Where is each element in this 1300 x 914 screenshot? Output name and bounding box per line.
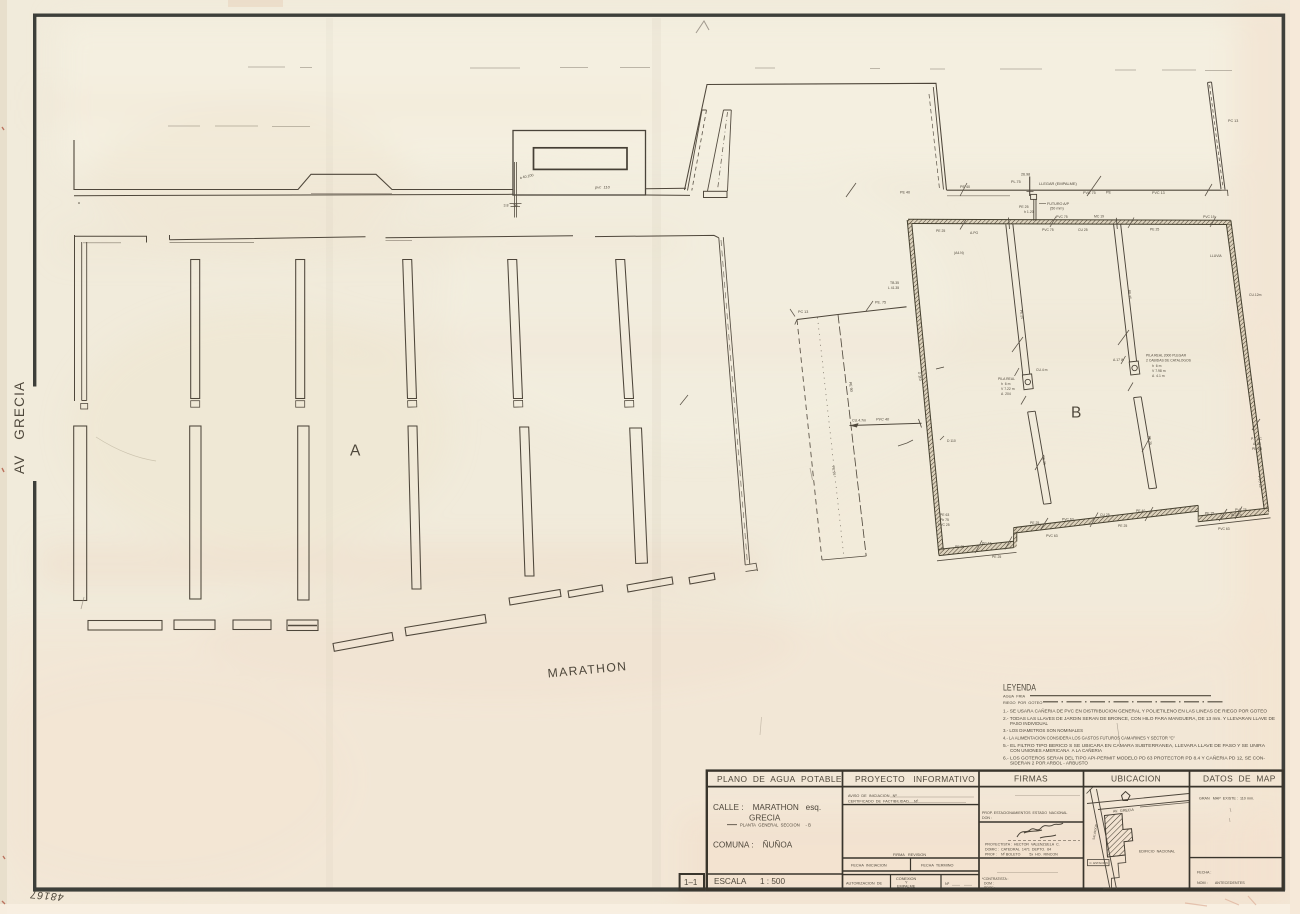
svg-text:A 204: A 204 (1001, 392, 1011, 396)
svg-text:CU 25: CU 25 (1078, 228, 1088, 232)
svg-text:PVC 25: PVC 25 (938, 523, 950, 527)
svg-text:h 6 m: h 6 m (1001, 382, 1011, 386)
svg-text:A.PG: A.PG (970, 231, 978, 235)
svg-text:pvc 110: pvc 110 (594, 185, 611, 190)
svg-text:A: A (350, 443, 361, 460)
svg-text:PROYECTISTA : HECTOR VALENZU: PROYECTISTA : HECTOR VALENZUELA C. (985, 843, 1060, 847)
svg-text:(50 mm): (50 mm) (1050, 207, 1064, 211)
svg-text:PE 25: PE 25 (936, 229, 945, 233)
svg-text:PVC 75: PVC 75 (1056, 215, 1068, 219)
svg-text:PE 25: PE 25 (992, 555, 1001, 559)
svg-text:PVC 13: PVC 13 (1152, 191, 1165, 195)
svg-text:PVC 75: PVC 75 (1042, 228, 1054, 232)
svg-text:SIDERAN 2 POR ARBOL - ARBUSTO: SIDERAN 2 POR ARBOL - ARBUSTO (1010, 761, 1089, 766)
svg-text:EDIFICIO NACIONAL: EDIFICIO NACIONAL (1139, 850, 1175, 854)
svg-text:1–1: 1–1 (684, 878, 698, 887)
svg-text:C. ESTACION: C. ESTACION (1090, 861, 1108, 865)
svg-text:AGUA FRIA: AGUA FRIA (1003, 694, 1025, 699)
svg-text:AUTORIZACION DE: AUTORIZACION DE (846, 882, 882, 886)
svg-text:CU.4 m: CU.4 m (1036, 368, 1048, 372)
svg-text:CU.4.7m: CU.4.7m (852, 419, 866, 423)
svg-text:MC 19: MC 19 (1094, 215, 1104, 219)
svg-text:PLANO DE AGUA POTABLE: PLANO DE AGUA POTABLE (717, 774, 842, 784)
svg-text:PE 63: PE 63 (940, 513, 949, 517)
svg-text:PC 13: PC 13 (1228, 119, 1238, 123)
svg-text:UBICACION: UBICACION (1111, 774, 1161, 784)
svg-text:PROYECTO INFORMATIVO: PROYECTO INFORMATIVO (855, 774, 975, 784)
svg-text:RIEGO POR GOTEO: RIEGO POR GOTEO (1003, 700, 1042, 705)
svg-text:26.98: 26.98 (1021, 173, 1030, 177)
svg-text:EMPALME: EMPALME (897, 885, 916, 889)
svg-text:PILA REAL 2000 PLEGAR: PILA REAL 2000 PLEGAR (1146, 354, 1187, 358)
svg-text:D 110: D 110 (947, 439, 956, 443)
svg-text:PROF : Nº BOLETO 5x: PROF : Nº BOLETO 5x HO. RINCON (985, 853, 1058, 857)
svg-text:FUTURO A/P: FUTURO A/P (1047, 202, 1070, 206)
svg-text:PROF :: PROF : (984, 886, 995, 890)
svg-text:A. 38: A. 38 (1253, 442, 1261, 446)
svg-text:P.T. AC: P.T. AC (1251, 437, 1262, 441)
svg-text:PC 13: PC 13 (982, 542, 992, 546)
svg-text:PASO INDIVIDUAL: PASO INDIVIDUAL (1010, 721, 1049, 726)
svg-text:PVC 75: PVC 75 (1083, 191, 1096, 195)
svg-text:4.- LA ALIMENTACION CONSIDERA: 4.- LA ALIMENTACION CONSIDERA LOS GASTOS… (1003, 736, 1176, 741)
svg-text:FIRMAS: FIRMAS (1014, 774, 1048, 784)
svg-text:1.- SE USARA CAÑERIA DE PVC EN: 1.- SE USARA CAÑERIA DE PVC EN DISTRIBUC… (1003, 709, 1268, 714)
svg-text:PROP. ESTACIONAMIENTOS ESTADO: PROP. ESTACIONAMIENTOS ESTADO NACIONAL (982, 811, 1067, 815)
svg-text:FECHA :: FECHA : (1197, 871, 1211, 875)
svg-text:PE: PE (1106, 191, 1111, 195)
svg-text:PVC 40: PVC 40 (876, 418, 890, 422)
svg-text:V 7.22 m: V 7.22 m (1001, 387, 1015, 391)
svg-text:PL.75: PL.75 (1011, 180, 1021, 184)
svg-text:*CONTRATISTA :: *CONTRATISTA : (982, 877, 1008, 881)
svg-text:PB. 85: PB. 85 (1252, 447, 1262, 451)
svg-text:Nº: Nº (945, 882, 950, 886)
svg-text:50: 50 (514, 204, 518, 208)
svg-text:FIRMA REVISION: FIRMA REVISION (893, 853, 926, 857)
svg-text:CU 25: CU 25 (1100, 513, 1110, 517)
svg-text:PE 25: PE 25 (1019, 205, 1029, 209)
svg-text:FECHA TERMINO: FECHA TERMINO (921, 864, 953, 868)
svg-text:(A4.N): (A4.N) (954, 251, 964, 255)
svg-text:ESCALA 1 : 500: ESCALA 1 : 500 (714, 877, 785, 886)
svg-text:PE 40: PE 40 (1136, 509, 1145, 513)
svg-text:PE 25: PE 25 (1118, 524, 1127, 528)
svg-text:PVC 19: PVC 19 (1203, 215, 1215, 219)
svg-text:COMUNA : ÑUÑOA: COMUNA : ÑUÑOA (713, 839, 793, 849)
svg-text:DATOS DE MAP: DATOS DE MAP (1203, 774, 1276, 784)
svg-text:2 CABIDAS DE CATALOGOS: 2 CABIDAS DE CATALOGOS (1146, 359, 1192, 363)
svg-text:CALLE : MARATHON esq.: CALLE : MARATHON esq. (713, 803, 821, 812)
svg-text:PC 13: PC 13 (798, 310, 808, 314)
svg-text:LEYENDA: LEYENDA (1003, 683, 1036, 694)
svg-text:A 4.1 m: A 4.1 m (1152, 374, 1165, 378)
svg-text:PVC 63: PVC 63 (1046, 534, 1058, 538)
svg-text:PE 25: PE 25 (1205, 512, 1214, 516)
svg-text:B: B (1071, 405, 1082, 422)
svg-text:PVC 63: PVC 63 (1062, 518, 1074, 522)
svg-text:DOMIC : CATEDRAL 1471 DEPTO: DOMIC : CATEDRAL 1471 DEPTO. 64 (985, 848, 1051, 852)
svg-text:TB.35: TB.35 (890, 281, 899, 285)
svg-text:PILA REAL: PILA REAL (998, 377, 1015, 381)
svg-text:V 7.98 m: V 7.98 m (1152, 369, 1166, 373)
svg-text:LLEGAR (EMPALME): LLEGAR (EMPALME) (1039, 181, 1077, 186)
svg-text:LLUVIA: LLUVIA (1210, 254, 1222, 258)
svg-text:DON :: DON : (982, 816, 992, 820)
svg-text:CERTIFICADO DE FACTIBILIDAD: CERTIFICADO DE FACTIBILIDAD Nº (848, 800, 919, 804)
svg-text:GRECIA: GRECIA (749, 813, 781, 822)
svg-text:3.8: 3.8 (504, 204, 509, 208)
svg-text:PE 25: PE 25 (955, 545, 964, 549)
svg-text:CON UNIONES AMERICANA A LA CA: CON UNIONES AMERICANA A LA CAÑERIA (1010, 748, 1102, 753)
svg-text:PE 25: PE 25 (1150, 228, 1159, 232)
svg-text:PE. 75: PE. 75 (875, 301, 886, 305)
svg-text:CU.12m: CU.12m (1249, 293, 1262, 297)
svg-text:PLANTA GENERAL SECCION -: PLANTA GENERAL SECCION - B (740, 823, 811, 828)
svg-text:AV GRECIA: AV GRECIA (12, 381, 27, 474)
svg-text:h 1.20: h 1.20 (1024, 210, 1034, 214)
svg-text:FECHA INICIACION: FECHA INICIACION (851, 864, 887, 868)
svg-text:PE 40: PE 40 (960, 185, 970, 189)
svg-text:L 41.35: L 41.35 (888, 286, 899, 290)
svg-text:NOM : ANTECEDENTES: NOM : ANTECEDENTES (1197, 881, 1245, 885)
svg-text:PE 25: PE 25 (1030, 521, 1039, 525)
svg-text:AVISO DE INICIACION Nº: AVISO DE INICIACION Nº (848, 794, 897, 798)
svg-text:DOM :: DOM : (984, 882, 994, 886)
svg-text:3.- LOS DIAMETROS SON NOMINALE: 3.- LOS DIAMETROS SON NOMINALES (1003, 728, 1083, 733)
svg-text:GRAN MAP EXISTE : 110 mm.: GRAN MAP EXISTE : 110 mm. (1199, 797, 1254, 801)
svg-text:h 6 m: h 6 m (1152, 364, 1162, 368)
svg-text:Pb 75: Pb 75 (940, 518, 949, 522)
svg-text:PVC 63: PVC 63 (1218, 527, 1230, 531)
svg-text:PE 40: PE 40 (900, 191, 910, 195)
